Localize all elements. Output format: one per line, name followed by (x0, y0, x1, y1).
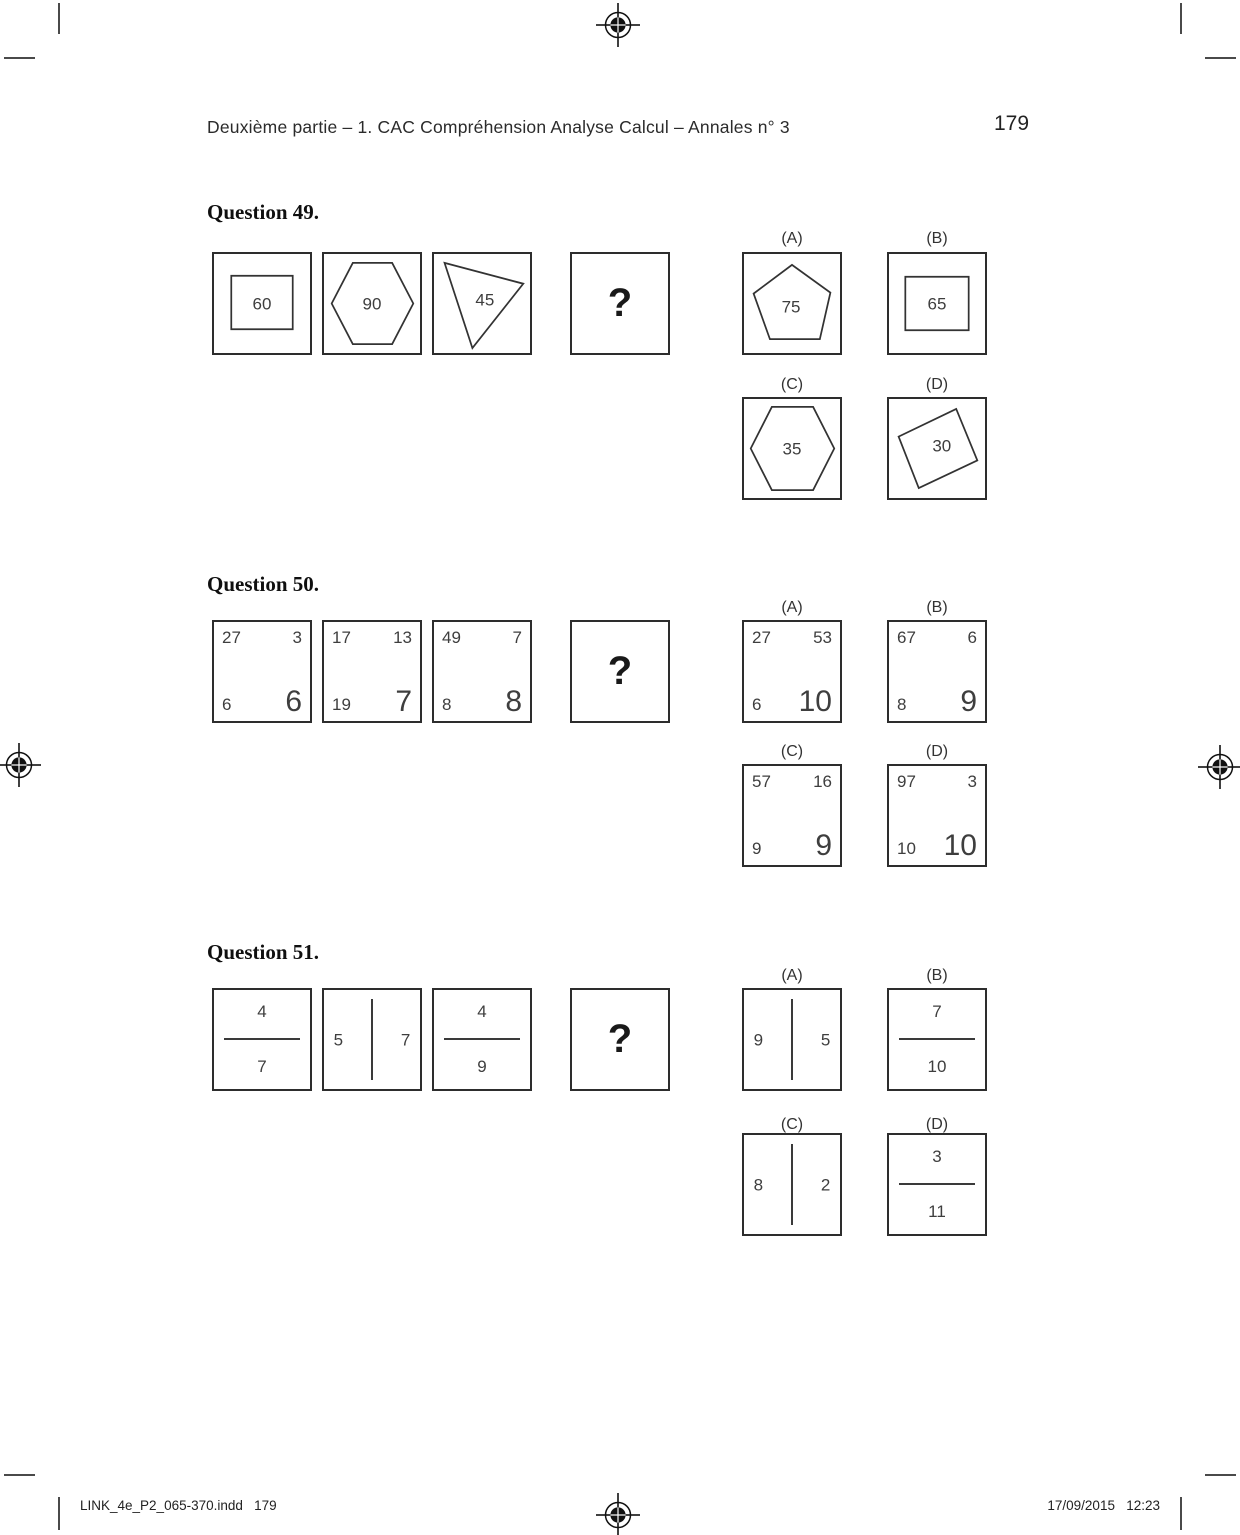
cell-value-bottom-left: 8 (897, 696, 906, 713)
cell-value-top-right: 3 (968, 773, 977, 790)
vertical-bar (371, 999, 373, 1080)
page-number: 179 (994, 112, 1029, 136)
fraction-denominator: 11 (889, 1203, 985, 1220)
right-value: 7 (401, 1031, 410, 1048)
q51-sequence-box-2: 5 7 (322, 988, 422, 1091)
registration-mark-icon (0, 743, 41, 787)
fraction-bar (224, 1038, 301, 1040)
q51-option-b: 7 10 (887, 988, 987, 1091)
q51-option-a: 9 5 (742, 988, 842, 1091)
fraction-bar (899, 1183, 976, 1185)
fraction-bar (444, 1038, 521, 1040)
q50-sequence-box-1: 27 3 6 6 (212, 620, 312, 723)
fraction-denominator: 9 (434, 1058, 530, 1075)
fraction-denominator: 10 (889, 1058, 985, 1075)
cell-value-bottom-left: 8 (442, 696, 451, 713)
fraction-bar (899, 1038, 976, 1040)
running-header: Deuxième partie – 1. CAC Compréhension A… (207, 117, 790, 138)
registration-mark-icon (1198, 745, 1240, 789)
footer-file-info: LINK_4e_P2_065-370.indd 179 (80, 1498, 277, 1513)
q49-sequence-box-3: 45 (432, 252, 532, 355)
q51-question-mark-box: ? (570, 988, 670, 1091)
cell-value-top-right: 13 (393, 629, 412, 646)
q51-sequence-box-1: 4 7 (212, 988, 312, 1091)
question-mark: ? (608, 649, 632, 694)
cell-value-top-left: 67 (897, 629, 916, 646)
question-50-title: Question 50. (207, 572, 319, 597)
cell-value-top-right: 53 (813, 629, 832, 646)
fraction-numerator: 3 (889, 1148, 985, 1165)
q49-option-d-label: (D) (885, 376, 989, 394)
footer-datetime: 17/09/2015 12:23 (1047, 1498, 1160, 1513)
q51-option-a-label: (A) (740, 967, 844, 985)
cell-value-top-left: 57 (752, 773, 771, 790)
q49-sequence-box-1: 60 (212, 252, 312, 355)
right-value: 5 (821, 1031, 830, 1048)
left-value: 9 (754, 1031, 763, 1048)
registration-mark-icon (596, 3, 640, 47)
cell-value-top-right: 6 (968, 629, 977, 646)
cell-value-top-left: 17 (332, 629, 351, 646)
cell-value-bottom-right: 10 (944, 831, 977, 861)
q49-option-c-label: (C) (740, 376, 844, 394)
cell-value-top-left: 27 (752, 629, 771, 646)
q51-option-c: 8 2 (742, 1133, 842, 1236)
crop-mark-top-right-vertical (1180, 3, 1182, 34)
fraction-denominator: 7 (214, 1058, 310, 1075)
cell-value-bottom-right: 7 (395, 687, 412, 717)
shape-value: 90 (363, 295, 382, 312)
fraction-numerator: 4 (214, 1003, 310, 1020)
q49-option-d: 30 (887, 397, 987, 500)
vertical-bar (791, 1144, 793, 1225)
left-value: 5 (334, 1031, 343, 1048)
q49-question-mark-box: ? (570, 252, 670, 355)
question-mark: ? (608, 281, 632, 326)
q51-option-b-label: (B) (885, 967, 989, 985)
shape-value: 75 (782, 299, 801, 316)
cell-value-bottom-right: 9 (960, 687, 977, 717)
cell-value-top-right: 3 (293, 629, 302, 646)
cell-value-top-right: 16 (813, 773, 832, 790)
crop-mark-bottom-left-horizontal (4, 1474, 35, 1476)
registration-mark-icon (596, 1493, 640, 1535)
question-mark: ? (608, 1017, 632, 1062)
q51-option-c-label: (C) (740, 1116, 844, 1134)
q50-sequence-box-2: 17 13 19 7 (322, 620, 422, 723)
cell-value-bottom-left: 10 (897, 840, 916, 857)
q50-option-b-label: (B) (885, 599, 989, 617)
fraction-numerator: 4 (434, 1003, 530, 1020)
crop-mark-bottom-right-horizontal (1205, 1474, 1236, 1476)
cell-value-top-left: 49 (442, 629, 461, 646)
shape-value: 45 (475, 291, 494, 308)
shape-value: 30 (932, 437, 951, 454)
cell-value-top-left: 97 (897, 773, 916, 790)
cell-value-bottom-left: 6 (222, 696, 231, 713)
cell-value-bottom-right: 8 (505, 687, 522, 717)
q50-question-mark-box: ? (570, 620, 670, 723)
q49-option-b-label: (B) (885, 230, 989, 248)
q49-option-c: 35 (742, 397, 842, 500)
cell-value-bottom-right: 6 (285, 687, 302, 717)
q51-sequence-box-3: 4 9 (432, 988, 532, 1091)
cell-value-bottom-left: 9 (752, 840, 761, 857)
vertical-bar (791, 999, 793, 1080)
book-page: Deuxième partie – 1. CAC Compréhension A… (0, 0, 1240, 1535)
cell-value-bottom-left: 19 (332, 696, 351, 713)
q51-option-d: 3 11 (887, 1133, 987, 1236)
cell-value-top-right: 7 (513, 629, 522, 646)
q49-sequence-box-2: 90 (322, 252, 422, 355)
crop-mark-top-left-vertical (58, 3, 60, 34)
right-value: 2 (821, 1176, 830, 1193)
fraction-numerator: 7 (889, 1003, 985, 1020)
question-49-title: Question 49. (207, 200, 319, 225)
shape-value: 65 (928, 295, 947, 312)
q50-option-c: 57 16 9 9 (742, 764, 842, 867)
crop-mark-bottom-left-vertical (58, 1497, 60, 1530)
shape-value: 60 (253, 295, 272, 312)
left-value: 8 (754, 1176, 763, 1193)
cell-value-top-left: 27 (222, 629, 241, 646)
q49-option-a: 75 (742, 252, 842, 355)
cell-value-bottom-right: 10 (799, 687, 832, 717)
q51-option-d-label: (D) (885, 1116, 989, 1134)
question-51-title: Question 51. (207, 940, 319, 965)
crop-mark-bottom-right-vertical (1180, 1497, 1182, 1530)
crop-mark-top-right-horizontal (1205, 57, 1236, 59)
q50-option-a-label: (A) (740, 599, 844, 617)
q50-option-a: 27 53 6 10 (742, 620, 842, 723)
cell-value-bottom-left: 6 (752, 696, 761, 713)
q49-option-b: 65 (887, 252, 987, 355)
q50-option-d: 97 3 10 10 (887, 764, 987, 867)
q50-option-b: 67 6 8 9 (887, 620, 987, 723)
crop-mark-top-left-horizontal (4, 57, 35, 59)
q50-sequence-box-3: 49 7 8 8 (432, 620, 532, 723)
q49-option-a-label: (A) (740, 230, 844, 248)
q50-option-c-label: (C) (740, 743, 844, 761)
q50-option-d-label: (D) (885, 743, 989, 761)
shape-value: 35 (783, 440, 802, 457)
cell-value-bottom-right: 9 (815, 831, 832, 861)
